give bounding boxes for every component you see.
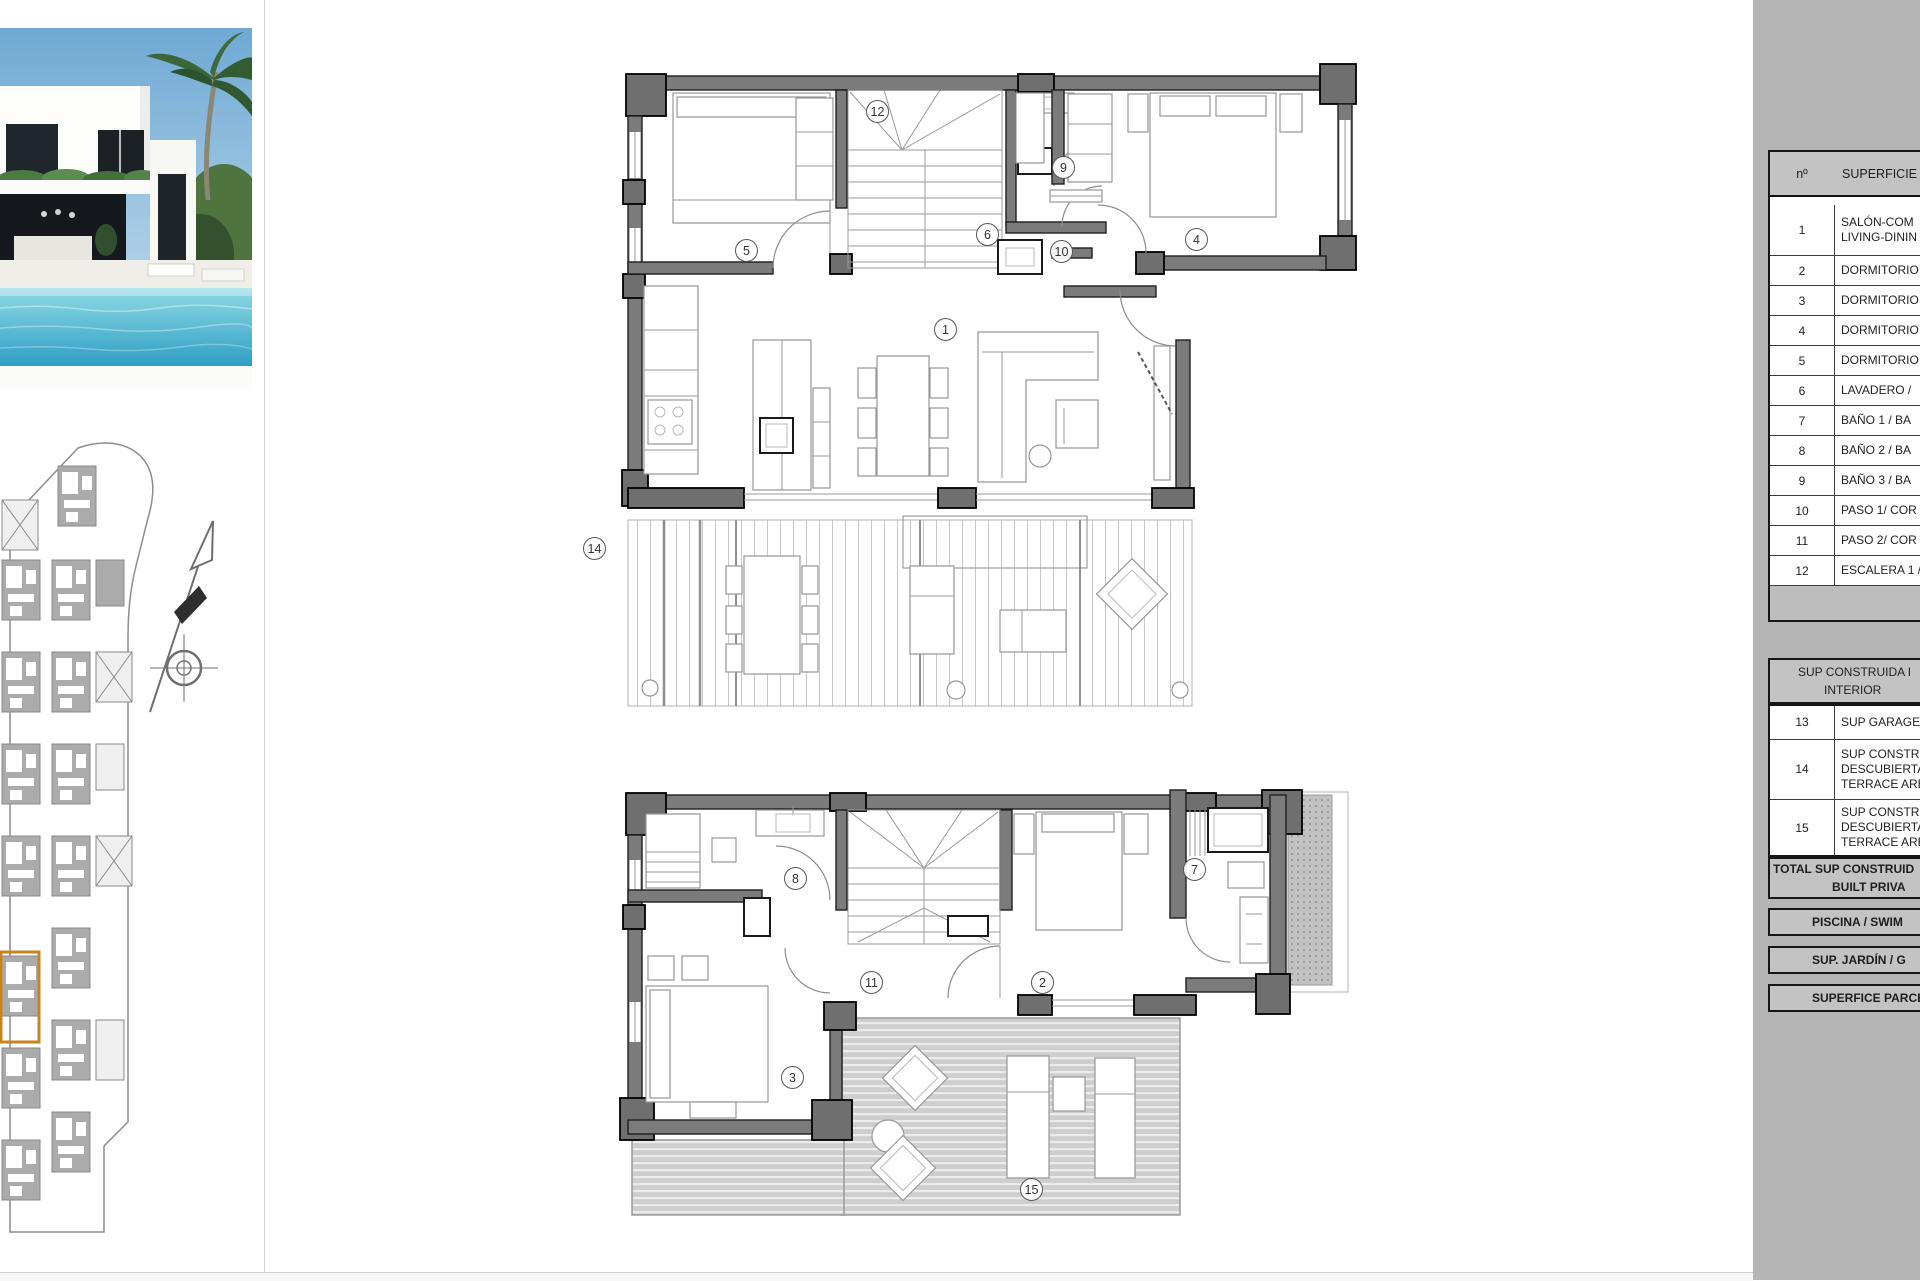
room-marker-bath1: 7 [1183,858,1206,881]
table-row: 7 BAÑO 1 / BA [1770,405,1920,435]
area-table-header: nº SUPERFICIE Ú [1770,152,1920,197]
pool-band: PISCINA / SWIM [1768,908,1920,936]
area-table: nº SUPERFICIE Ú 1 SALÓN-COM LIVING-DININ… [1768,150,1920,622]
plot-band: SUPERFICE PARCE [1768,984,1920,1012]
table-row: 9 BAÑO 3 / BA [1770,465,1920,495]
table-row: 11 PASO 2/ COR [1770,525,1920,555]
total-built-band: TOTAL SUP CONSTRUID BUILT PRIVA [1768,857,1920,899]
room-marker-laundry: 6 [976,223,999,246]
site-plan-art [0,430,240,1240]
table-row: 10 PASO 1/ COR [1770,495,1920,525]
built-area-section-header: SUP CONSTRUIDA I INTERIOR [1768,658,1920,704]
north-arrow-icon [150,521,218,712]
room-marker-stairs: 12 [866,100,889,123]
outdoor-area-rows: 13 SUP GARAGE 14 SUP CONSTRU DESCUBIERTA… [1768,704,1920,857]
table-row: 6 LAVADERO / [1770,375,1920,405]
garden-band: SUP. JARDÍN / G [1768,946,1920,974]
room-marker-terrace-upper: 14 [583,537,606,560]
lower-floor-plan-art [600,780,1360,1250]
room-marker-bedroom4: 4 [1185,228,1208,251]
room-marker-bath3: 9 [1052,156,1075,179]
table-row: 13 SUP GARAGE [1770,706,1920,739]
table-row: 2 DORMITORIO [1770,255,1920,285]
table-row: 8 BAÑO 2 / BA [1770,435,1920,465]
room-marker-hall2: 11 [860,971,883,994]
column-area-header: SUPERFICIE Ú [1834,167,1920,181]
villa-exterior-photo [0,28,252,390]
table-row: 1 SALÓN-COM LIVING-DININ [1770,205,1920,255]
room-rows: 1 SALÓN-COM LIVING-DININ 2 DORMITORIO 3 … [1770,205,1920,585]
table-row: 5 DORMITORIO [1770,345,1920,375]
room-marker-bedroom5: 5 [735,239,758,262]
room-marker-bath2: 8 [784,867,807,890]
room-marker-living: 1 [934,318,957,341]
upper-floor-plan [580,55,1380,720]
upper-floor-plan-art [580,55,1380,720]
room-marker-bedroom3: 3 [781,1066,804,1089]
room-marker-hall1: 10 [1050,240,1073,263]
column-number-header: nº [1770,167,1834,181]
vertical-divider [264,0,265,1272]
table-row: 15 SUP CONSTRU DESCUBIERTA TERRACE ARE [1770,799,1920,855]
table-row: 3 DORMITORIO [1770,285,1920,315]
lower-floor-plan [600,780,1360,1250]
room-marker-bedroom2: 2 [1031,971,1054,994]
room-marker-terrace-lower: 15 [1020,1178,1043,1201]
table-row: 4 DORMITORIO [1770,315,1920,345]
table-row: 14 SUP CONSTRU DESCUBIERTA TERRACE ARE [1770,739,1920,800]
table-row: 12 ESCALERA 1 / [1770,555,1920,585]
urbanization-site-plan [0,430,240,1240]
villa-photo-art [0,28,252,390]
